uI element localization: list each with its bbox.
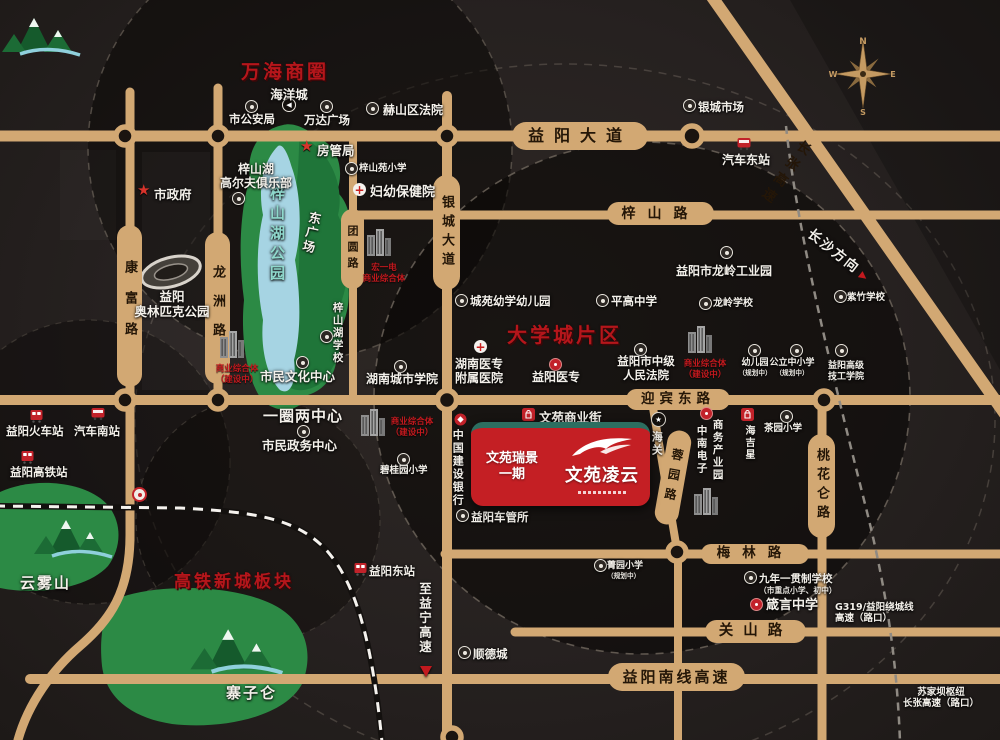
sujiaba-interchange-line: 长张高速（路口） (896, 698, 986, 709)
poi-golf-club: 梓山湖高尔夫俱乐部 (215, 162, 297, 191)
shangwu-park-label: 商务产业园 (712, 419, 724, 482)
zhiyining-expressway-label: 至益宁高速 (417, 582, 432, 655)
project-phase-number: 一期 (486, 467, 538, 483)
poi-circle-icon (834, 290, 847, 303)
buildings-icon (693, 485, 719, 516)
project-phase-one: 文苑瑞景 一期 (486, 451, 538, 483)
poi-zhenyan-school: 箴言中学 (766, 598, 818, 614)
poi-heshan-court: 赫山区法院 (383, 103, 443, 117)
poi-longling-industrial: 益阳市龙岭工业园 (676, 264, 772, 278)
poi-circle-icon (790, 344, 803, 357)
poi-haijixing: 海吉星 (742, 425, 754, 471)
star-icon: ★ (137, 183, 150, 198)
yiyang-east-station-label: 益阳东站 (369, 564, 415, 578)
complex-center-line: （建设中） (387, 428, 437, 439)
wanda-plaza-label: 万达广场 (304, 113, 350, 127)
poi-circle-icon (699, 297, 712, 310)
ccb-bank-label: 中国建设银行 (451, 429, 464, 507)
poi-biguiyuan-primary: 碧桂园小学 (380, 465, 428, 476)
haiguan-label: 海关 (650, 431, 663, 457)
project-brand: 文苑凌云 (562, 436, 642, 494)
poi-circle-icon (296, 356, 309, 369)
poi-shimin-culture-center: 市民文化中心 (260, 369, 335, 384)
bus-icon (91, 407, 105, 421)
poi-hongyi-complex: 宏一电商业综合体 (357, 263, 411, 284)
longling-industrial-label: 益阳市龙岭工业园 (676, 264, 772, 278)
poi-jigong-college: 益阳高级技工学院 (822, 361, 870, 383)
zishanhu-park-label-label: 梓山湖公园 (268, 185, 286, 285)
hunan-yizhuan-hospital-line: 湖南医专 (450, 357, 508, 371)
poi-fuyou-baojianyuan: 妇幼保健院 (370, 185, 435, 201)
poi-complex-culture: 商业综合体（建设中） (212, 364, 262, 385)
poi-circle-icon (455, 294, 468, 307)
hongyi-complex-line: 商业综合体 (357, 274, 411, 285)
project-tagline (578, 491, 626, 494)
poi-qiche-nanzhan: 汽车南站 (74, 425, 120, 439)
zizhu-school-label: 紫竹学校 (847, 292, 885, 303)
poi-circle-icon (366, 102, 379, 115)
zishanyuan-primary-label: 梓山苑小学 (359, 163, 407, 174)
train-icon (354, 562, 367, 576)
poi-circle-icon (458, 646, 471, 659)
zone-wanhai-business: 万海商圈 (241, 57, 329, 84)
road-label-meilin-road: 梅林路 (701, 544, 809, 564)
poi-yiyang-gaotie-station: 益阳高铁站 (10, 466, 68, 480)
buildings-icon (687, 323, 713, 354)
poi-chengyuan-kindergarten: 城苑幼学幼儿园 (470, 295, 551, 309)
complex-culture-line: （建设中） (212, 375, 262, 386)
shimin-culture-center-label: 市民文化中心 (260, 369, 335, 384)
poi-circle-icon (780, 410, 793, 423)
complex-right-line: 商业综合体 (680, 359, 730, 370)
yiyang-yizhuan-label: 益阳医专 (532, 370, 580, 384)
poi-olympic-park-label: 益阳奥林匹克公园 (128, 289, 216, 319)
hospital-cross-icon: + (474, 340, 487, 353)
poi-zishanhu-school: 梓山湖学校 (331, 302, 344, 376)
bus-icon (737, 137, 751, 151)
location-map: 万海商圈大学城片区高铁新城板块益阳大道梓山路迎宾东路梅林路关山路益阳南线高速康富… (0, 0, 1000, 740)
changzhang-expressway-label-label: 长张高速 (754, 136, 813, 209)
poi-g319-interchange: G319/益阳绕城线高速（路口） (835, 602, 914, 625)
golf-club-line: 梓山湖 (215, 162, 297, 176)
changsha-direction-label: 长沙方向 (804, 226, 863, 277)
poi-hunan-city-college: 湖南城市学院 (366, 372, 438, 386)
hongyi-complex-line: 宏一电 (357, 263, 411, 274)
buildings-icon (360, 406, 386, 437)
jigong-college-line: 技工学院 (822, 372, 870, 383)
dong-square-label: 东广场 (299, 210, 323, 256)
project-name: 文苑凌云 (562, 462, 642, 487)
poi-wanda-plaza: 万达广场 (297, 114, 357, 128)
intermediate-court-line: 人民法院 (608, 369, 684, 383)
poi-longling-school: 龙岭学校 (713, 298, 753, 310)
chengyuan-kindergarten-label: 城苑幼学幼儿园 (470, 294, 551, 308)
compass-west-label: W (829, 70, 838, 79)
olympic-park-label-line: 益阳 (128, 289, 216, 304)
poi-circle-icon (596, 294, 609, 307)
poi-public-school-planned: 公立中小学（规划中） (766, 358, 818, 377)
poi-fangguanju: 房管局 (317, 143, 355, 158)
hunan-yizhuan-hospital-line: 附属医院 (450, 371, 508, 385)
zhongnan-electronics-label: 中南电子 (696, 425, 708, 475)
road-label-yiyang-south-expressway: 益阳南线高速 (608, 663, 745, 691)
train-icon (30, 409, 43, 423)
yincheng-market-label: 银城市场 (698, 100, 744, 114)
road-label-yingbin-east-road: 迎宾东路 (626, 389, 730, 410)
poi-chegansuo: 益阳车管所 (471, 511, 529, 525)
poi-yincheng-market: 银城市场 (698, 101, 744, 115)
yiyang-railway-station-label: 益阳火车站 (6, 424, 64, 438)
shopping-icon (741, 408, 754, 421)
poi-zishanhu-park-label: 梓山湖公园 (268, 185, 286, 320)
poi-qiche-dongzhan: 汽车东站 (722, 153, 770, 167)
project-block: 文苑瑞景 一期 文苑凌云 (471, 422, 650, 506)
poi-hunan-yizhuan-hospital: 湖南医专附属医院 (450, 357, 508, 386)
zhaizi-mountain-label-label: 寨子仑 (226, 684, 277, 702)
haijixing-label: 海吉星 (743, 425, 754, 461)
hunan-city-college-label: 湖南城市学院 (366, 372, 438, 386)
poi-shigonganju: 市公安局 (221, 113, 283, 127)
shizhengfu-label: 市政府 (154, 187, 192, 202)
fangguanju-label: 房管局 (317, 143, 355, 158)
complex-center-line: 商业综合体 (387, 417, 437, 428)
poi-circle-icon (232, 192, 245, 205)
qiche-dongzhan-label: 汽车东站 (722, 153, 770, 167)
poi-shimin-zhengwu: 市民政务中心 (262, 438, 337, 453)
compass-east-label: E (890, 70, 895, 79)
complex-right-line: （建设中） (680, 370, 730, 381)
road-label-guanshan-road: 关山路 (705, 620, 806, 643)
poi-circle-icon (748, 344, 761, 357)
zishanhu-school-label: 梓山湖学校 (332, 302, 344, 365)
shopping-icon (522, 408, 535, 421)
yiquan-liangzhongxin-label: 一圈两中心 (263, 407, 343, 425)
buildings-icon (366, 226, 392, 257)
longling-school-label: 龙岭学校 (713, 298, 753, 309)
public-school-planned-label: 公立中小学 (769, 358, 814, 368)
biguiyuan-primary-label: 碧桂园小学 (380, 465, 428, 476)
complex-culture-line: 商业综合体 (212, 364, 262, 375)
road-label-yincheng-avenue: 银城大道 (433, 175, 460, 290)
poi-zhiyining-expressway: 至益宁高速 (417, 582, 432, 658)
shundecheng-label: 顺德城 (473, 647, 508, 661)
down-arrow-icon (420, 666, 432, 677)
railway-logo-icon (132, 487, 147, 502)
yunwu-mountain-label-label: 云雾山 (20, 574, 71, 592)
poi-complex-right: 商业综合体（建设中） (680, 359, 730, 380)
customs-star-icon: ★ (651, 412, 666, 427)
intermediate-court-line: 益阳市中级 (608, 355, 684, 369)
pinggao-school-label: 平高中学 (611, 294, 657, 308)
poi-ccb-bank: 中国建设银行 (451, 429, 464, 511)
hospital-cross-icon: + (353, 183, 366, 196)
poi-yiquan-liangzhongxin: 一圈两中心 (263, 407, 343, 425)
project-phase-name: 文苑瑞景 (486, 451, 538, 467)
haiyangcheng-label: 海洋城 (270, 87, 308, 102)
shimin-zhengwu-label: 市民政务中心 (262, 438, 337, 453)
poi-circle-icon (345, 162, 358, 175)
qiche-nanzhan-label: 汽车南站 (74, 424, 120, 438)
zhenyan-school-label: 箴言中学 (766, 598, 818, 613)
poi-circle-icon (320, 100, 333, 113)
star-icon: ★ (300, 139, 313, 154)
poi-zizhu-school: 紫竹学校 (847, 292, 885, 303)
jingyuan-primary-label: 菁园小学 (607, 561, 643, 571)
road-label-taohualun-road: 桃花仑路 (808, 434, 835, 538)
poi-haiguan: 海关 (650, 431, 663, 471)
poi-circle-icon (594, 559, 607, 572)
poi-dong-square: 东广场 (296, 210, 323, 270)
fuyou-baojianyuan-label: 妇幼保健院 (370, 185, 435, 200)
chegansuo-label: 益阳车管所 (471, 510, 529, 524)
poi-jiunian-school: 九年一贯制学校（市重点小学、初中） (759, 573, 837, 595)
poi-pinggao-school: 平高中学 (611, 295, 657, 309)
sujiaba-interchange-line: 苏家坝枢纽 (896, 687, 986, 698)
poi-haiyangcheng: 海洋城 (260, 87, 318, 102)
jigong-college-line: 益阳高级 (822, 361, 870, 372)
red-marker-icon (700, 407, 713, 420)
eagle-logo-icon (570, 436, 634, 458)
poi-chayuan-primary: 茶园小学 (764, 423, 802, 434)
poi-circle-icon (683, 99, 696, 112)
bank-icon (454, 413, 467, 426)
jiunian-school-sub: （市重点小学、初中） (759, 586, 837, 595)
jingyuan-primary-sub: （规划中） (607, 572, 643, 580)
zone-gaotie-xincheng: 高铁新城板块 (174, 567, 294, 592)
jiunian-school-label: 九年一贯制学校 (759, 573, 833, 585)
poi-sujiaba-interchange: 苏家坝枢纽长张高速（路口） (896, 687, 986, 710)
poi-zishanyuan-primary: 梓山苑小学 (359, 163, 407, 174)
shigonganju-label: 市公安局 (229, 112, 275, 126)
road-label-yiyang-avenue: 益阳大道 (512, 122, 648, 150)
train-icon (21, 450, 34, 464)
poi-shundecheng: 顺德城 (473, 648, 508, 662)
compass-north-label: N (859, 37, 867, 47)
golf-club-line: 高尔夫俱乐部 (215, 176, 297, 190)
buildings-icon (219, 328, 245, 359)
kindergarten-planned-label: 幼儿园 (741, 358, 768, 368)
poi-yiyang-yizhuan: 益阳医专 (532, 370, 580, 384)
red-marker-icon (750, 598, 763, 611)
poi-yiyang-railway-station: 益阳火车站 (6, 425, 64, 439)
chayuan-primary-label: 茶园小学 (764, 423, 802, 434)
poi-yiyang-east-station: 益阳东站 (369, 565, 415, 579)
compass-south-label: S (860, 108, 866, 116)
poi-circle-icon (297, 425, 310, 438)
poi-yunwu-mountain-label: 云雾山 (20, 574, 71, 592)
road-label-zishan-road: 梓山路 (607, 202, 714, 225)
poi-complex-center: 商业综合体（建设中） (387, 417, 437, 438)
poi-intermediate-court: 益阳市中级人民法院 (608, 355, 684, 383)
g319-interchange-line: 高速（路口） (835, 613, 914, 624)
direction-arrow-icon: ▶ (857, 270, 871, 285)
g319-interchange-line: G319/益阳绕城线 (835, 602, 914, 613)
poi-circle-icon (744, 571, 757, 584)
poi-zhaizi-mountain-label: 寨子仑 (226, 684, 277, 702)
zone-daxuecheng: 大学城片区 (507, 319, 622, 348)
poi-circle-icon (835, 344, 848, 357)
poi-zhongnan-electronics: 中南电子 (695, 425, 708, 487)
poi-circle-icon (720, 246, 733, 259)
poi-shizhengfu: 市政府 (154, 187, 192, 202)
public-school-planned-sub: （规划中） (766, 369, 818, 377)
compass-icon: N W E S (828, 34, 898, 116)
poi-changsha-direction: 长沙方向▶ (804, 226, 874, 285)
poi-jingyuan-primary: 菁园小学（规划中） (607, 561, 643, 580)
heshan-court-label: 赫山区法院 (383, 103, 443, 117)
olympic-park-label-line: 奥林匹克公园 (128, 304, 216, 319)
yiyang-gaotie-station-label: 益阳高铁站 (10, 465, 68, 479)
